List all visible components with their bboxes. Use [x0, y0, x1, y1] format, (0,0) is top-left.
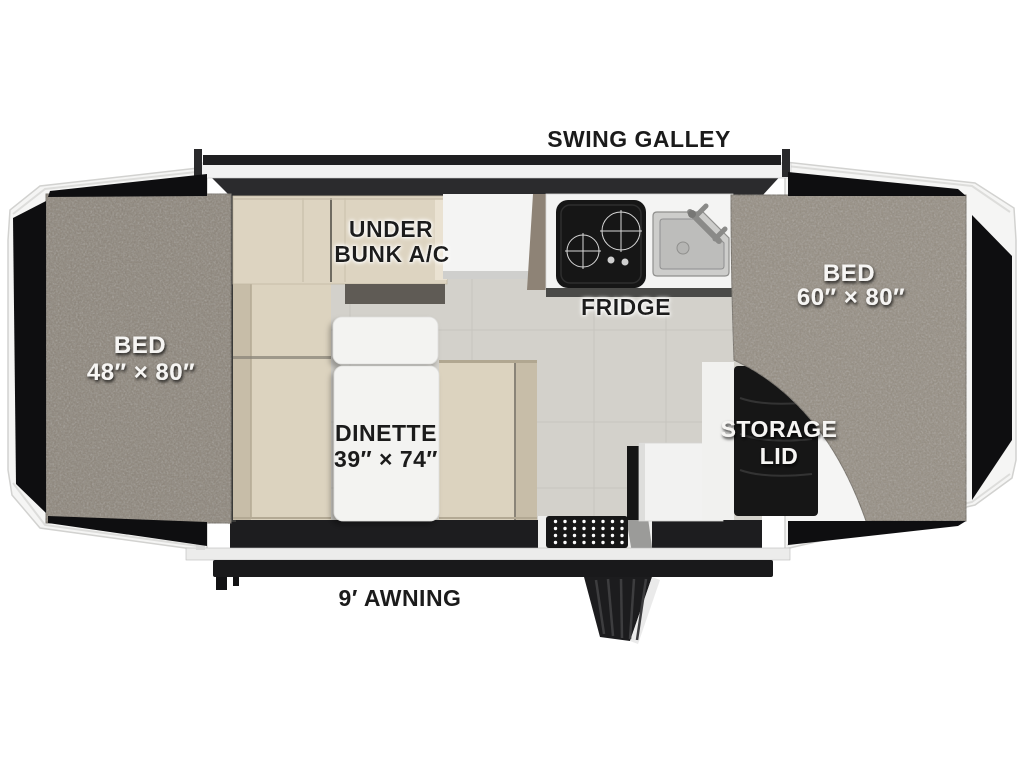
label-storage-lid-2: LID	[760, 443, 799, 469]
label-dinette: DINETTE	[335, 420, 437, 446]
cooktop	[556, 200, 646, 288]
label-under-bunk-ac: UNDER	[349, 216, 433, 242]
awning-bracket	[216, 577, 227, 590]
left-tent-side-panel	[13, 201, 46, 513]
sink-drain-icon	[677, 242, 689, 254]
label-bed-left: BED	[114, 332, 166, 359]
floorplan-canvas: SWING GALLEY BED 48″ × 80″ BED 60″ × 80″…	[0, 0, 1024, 768]
swing-galley-rail	[194, 149, 791, 178]
label-swing-galley: SWING GALLEY	[547, 126, 731, 152]
bumper-rail	[186, 548, 790, 560]
dinette-table	[333, 317, 439, 521]
label-bed-right-size: 60″ × 80″	[797, 284, 905, 311]
label-bed-left-size: 48″ × 80″	[87, 359, 195, 386]
bench-seam	[233, 356, 331, 359]
mini-counter	[443, 194, 533, 274]
cooktop-knob	[608, 257, 615, 264]
fold-out-step	[584, 577, 660, 644]
camper-floorplan: SWING GALLEY BED 48″ × 80″ BED 60″ × 80″…	[0, 0, 1024, 768]
bottom-wall	[230, 520, 762, 548]
entry-step-plate	[546, 516, 628, 548]
right-bench-back	[515, 362, 537, 520]
label-bed-right: BED	[823, 260, 875, 287]
bunk-recess	[345, 284, 445, 304]
label-storage-lid: STORAGE	[721, 416, 838, 442]
right-bench-seat	[439, 362, 515, 520]
label-under-bunk-ac-2: BUNK A/C	[334, 241, 450, 267]
label-awning: 9′ AWNING	[339, 585, 462, 611]
galley-counter	[546, 194, 733, 297]
label-fridge: FRIDGE	[581, 294, 671, 320]
right-tent-bottom-panel	[788, 521, 966, 545]
label-dinette-size: 39″ × 74″	[334, 446, 438, 472]
awning-bracket-2	[233, 577, 239, 586]
awning-bar	[213, 560, 773, 577]
rail-end-left	[194, 149, 202, 177]
cooktop-knob	[622, 259, 629, 266]
